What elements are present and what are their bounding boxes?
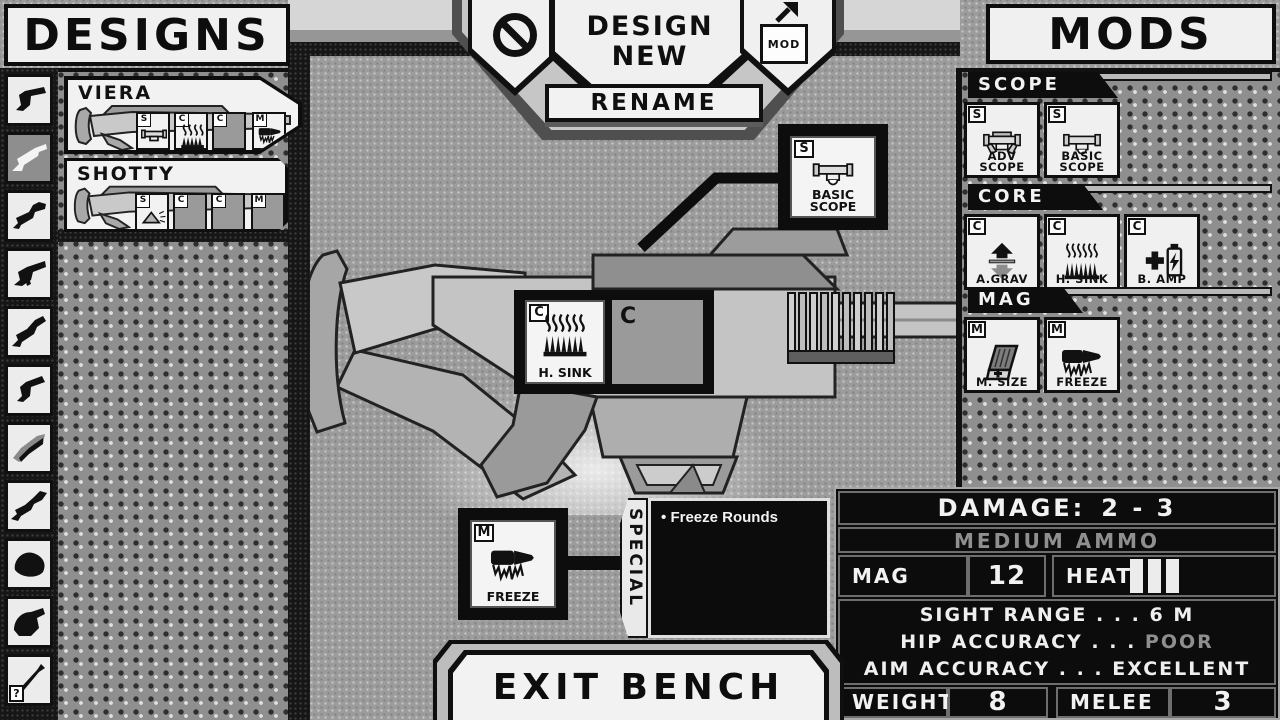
mod-card-anti-grav[interactable]: C A.GRAV bbox=[964, 214, 1040, 290]
sidebar-category-spear[interactable]: ? bbox=[5, 654, 53, 706]
mag-mod-label: FREEZE bbox=[472, 591, 554, 603]
weight-label-cell: WEIGHT bbox=[838, 687, 948, 718]
weapon-bench-screen: C H. SINK C S bbox=[0, 0, 1280, 720]
design-slot-core-1: C bbox=[173, 193, 207, 231]
carbine-icon bbox=[9, 312, 49, 352]
mod-card-freeze[interactable]: M FREEZE bbox=[1044, 317, 1120, 393]
mod-file-label: MOD bbox=[768, 38, 800, 51]
rename-button[interactable]: RENAME bbox=[545, 84, 763, 122]
design-slot-mag: M bbox=[251, 193, 285, 231]
sidebar-category-sniper[interactable] bbox=[5, 480, 53, 532]
smg-icon bbox=[9, 254, 49, 294]
special-item: Freeze Rounds bbox=[670, 509, 778, 526]
damage-header: DAMAGE: 2 - 3 bbox=[838, 491, 1276, 525]
bench-empty-core-slot[interactable]: C bbox=[612, 300, 703, 384]
melee-label-cell: MELEE bbox=[1056, 687, 1170, 718]
special-panel: SPECIAL • Freeze Rounds bbox=[620, 498, 832, 638]
bench-equipped-freeze[interactable]: M FREEZE bbox=[470, 520, 556, 608]
mag-size-value-cell: 12 bbox=[968, 555, 1046, 597]
bench-equipped-basic-scope[interactable]: S BASIC SCOPE bbox=[790, 136, 876, 218]
pistol-icon bbox=[9, 80, 49, 120]
sidebar-category-machine-gun[interactable] bbox=[5, 596, 53, 648]
empty-slot-badge: C bbox=[620, 304, 636, 329]
scope-mini-icon bbox=[141, 123, 167, 149]
design-slot-scope: S bbox=[136, 112, 170, 150]
bench-equipped-heat-sink[interactable]: C H. SINK bbox=[525, 300, 605, 384]
no-symbol-icon bbox=[493, 13, 537, 57]
aim-accuracy-line: AIM ACCURACY . . . EXCELLENT bbox=[840, 656, 1274, 683]
mod-card-battery-amp[interactable]: C B. AMP bbox=[1124, 214, 1200, 290]
sight-range-line: SIGHT RANGE . . . 6 M bbox=[840, 602, 1274, 629]
design-new-label: DESIGN NEW bbox=[580, 12, 720, 72]
design-card-shotty[interactable]: SHOTTY S C C M bbox=[64, 158, 288, 232]
weapon-stats-panel: DAMAGE: 2 - 3 MEDIUM AMMO MAG SIZE 12 HE… bbox=[834, 487, 1280, 720]
heat-sink-mini-icon bbox=[179, 123, 205, 149]
scope-section-header: SCOPE bbox=[968, 72, 1118, 98]
basic-scope-icon bbox=[804, 158, 862, 188]
mod-card-heat-sink[interactable]: C H. SINK bbox=[1044, 214, 1120, 290]
detail-stats-cell: SIGHT RANGE . . . 6 M HIP ACCURACY . . .… bbox=[838, 599, 1276, 685]
mods-title: MODS bbox=[986, 4, 1276, 64]
sidebar-category-pistol[interactable] bbox=[5, 74, 53, 126]
special-content-box: • Freeze Rounds bbox=[648, 498, 830, 638]
rename-label: RENAME bbox=[590, 90, 717, 116]
designs-divider bbox=[288, 56, 310, 720]
freeze-icon bbox=[485, 544, 541, 588]
bench-scope-frame: S BASIC SCOPE bbox=[778, 124, 888, 230]
special-label-strip: SPECIAL bbox=[620, 498, 648, 638]
mag-section-strip bbox=[1062, 287, 1272, 296]
heat-bars bbox=[1130, 559, 1179, 593]
weight-value-cell: 8 bbox=[948, 687, 1048, 718]
scope-mod-label: BASIC SCOPE bbox=[792, 189, 874, 213]
design-slot-core-2: C bbox=[211, 193, 245, 231]
melee-value-cell: 3 bbox=[1170, 687, 1276, 718]
ammo-type: MEDIUM AMMO bbox=[954, 529, 1160, 553]
heavy-weapon-icon bbox=[9, 544, 49, 584]
sidebar-category-shotgun[interactable] bbox=[5, 132, 53, 184]
sniper-icon bbox=[9, 486, 49, 526]
sidebar-category-smg[interactable] bbox=[5, 248, 53, 300]
sidebar-category-sidearm[interactable] bbox=[5, 364, 53, 416]
design-slot-core-1: C bbox=[174, 112, 208, 150]
design-card-viera[interactable]: VIERA S C bbox=[64, 76, 302, 154]
exit-bench-button[interactable]: EXIT BENCH bbox=[453, 655, 824, 720]
bench-mag-frame: M FREEZE bbox=[458, 508, 568, 620]
spread-mini-icon bbox=[140, 204, 166, 230]
sidebar-category-rifle[interactable] bbox=[5, 190, 53, 242]
heat-cell: HEAT bbox=[1052, 555, 1276, 597]
special-title: SPECIAL bbox=[625, 508, 645, 608]
arrow-up-right-icon bbox=[774, 1, 800, 23]
mod-card-mag-size[interactable]: M M. SIZE bbox=[964, 317, 1040, 393]
sidebar-category-heavy[interactable] bbox=[5, 538, 53, 590]
sidebar-category-launcher[interactable] bbox=[5, 422, 53, 474]
mod-card-basic-scope[interactable]: S BASIC SCOPE bbox=[1044, 102, 1120, 178]
ammo-type-bar: MEDIUM AMMO bbox=[838, 527, 1276, 553]
scope-section-strip bbox=[1095, 72, 1272, 81]
bullet-dot: • bbox=[661, 509, 666, 526]
hip-accuracy-line: HIP ACCURACY . . . POOR bbox=[840, 629, 1274, 656]
mod-file-box: MOD bbox=[760, 24, 808, 64]
design-slot-core-2: C bbox=[212, 112, 246, 150]
machine-gun-icon bbox=[9, 602, 49, 642]
launcher-icon bbox=[9, 428, 49, 468]
core-section-header: CORE bbox=[968, 184, 1103, 210]
rifle-icon bbox=[9, 196, 49, 236]
mag-badge: M bbox=[474, 524, 494, 542]
bench-core-slots-frame: C H. SINK C bbox=[514, 290, 714, 394]
core-section-strip bbox=[1082, 184, 1272, 193]
heat-sink-icon bbox=[539, 310, 591, 362]
mag-size-label-cell: MAG SIZE bbox=[838, 555, 968, 597]
mag-section-header: MAG bbox=[968, 287, 1083, 313]
damage-label: DAMAGE: bbox=[938, 494, 1086, 522]
designs-title: DESIGNS bbox=[4, 4, 290, 66]
mod-card-adv-scope[interactable]: S ADV SCOPE bbox=[964, 102, 1040, 178]
scope-badge: S bbox=[794, 140, 814, 158]
shotgun-icon bbox=[9, 138, 49, 178]
help-badge[interactable]: ? bbox=[9, 685, 24, 702]
damage-value: 2 - 3 bbox=[1101, 494, 1176, 522]
sidebar-category-carbine[interactable] bbox=[5, 306, 53, 358]
design-slot-scope: S bbox=[135, 193, 169, 231]
core-mod-label: H. SINK bbox=[527, 367, 603, 379]
sidearm-icon bbox=[9, 370, 49, 410]
